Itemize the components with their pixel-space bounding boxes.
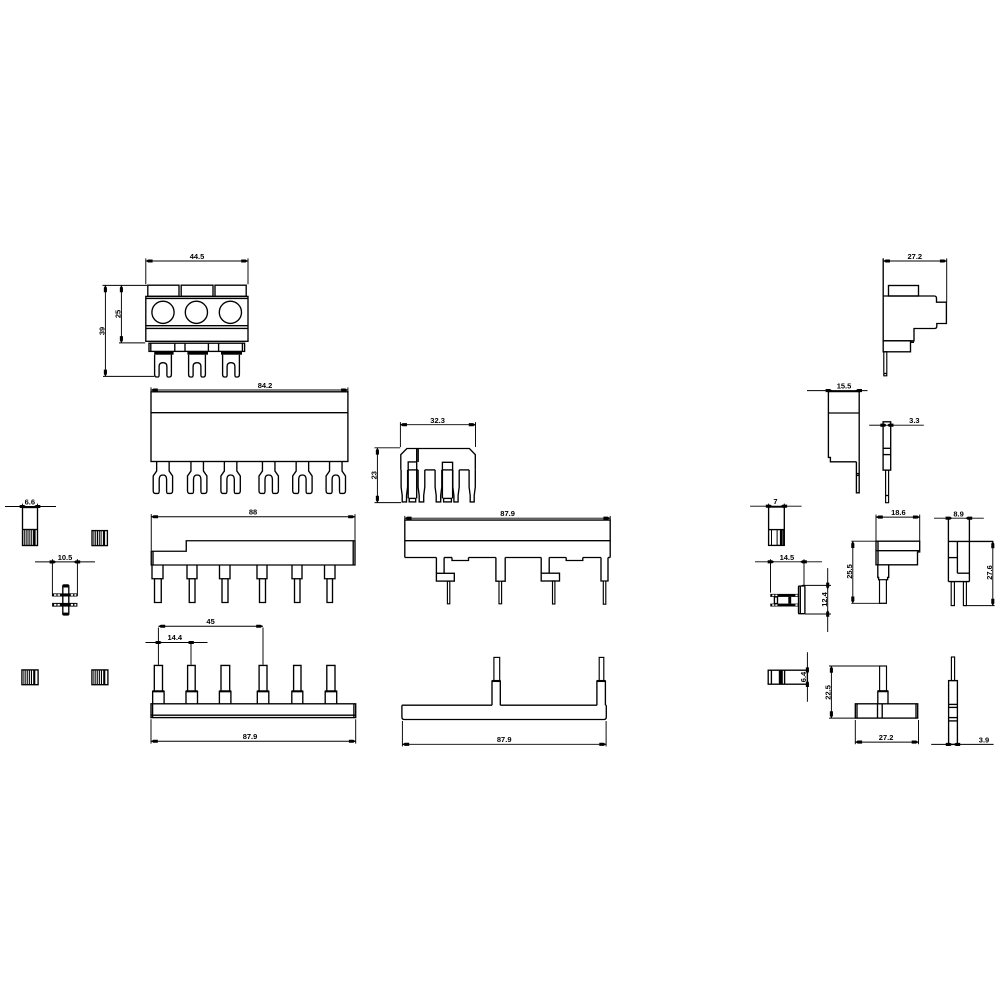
svg-text:27.2: 27.2 (907, 252, 922, 261)
svg-text:44.5: 44.5 (190, 252, 205, 261)
svg-text:25: 25 (113, 310, 122, 318)
svg-text:87.9: 87.9 (500, 509, 515, 518)
svg-text:18.6: 18.6 (891, 508, 906, 517)
svg-text:7: 7 (773, 497, 777, 506)
svg-text:14.5: 14.5 (780, 553, 795, 562)
svg-text:23: 23 (369, 471, 378, 479)
svg-text:88: 88 (249, 508, 257, 517)
svg-text:3.3: 3.3 (909, 416, 919, 425)
svg-text:87.9: 87.9 (243, 732, 258, 741)
svg-text:14.4: 14.4 (167, 633, 182, 642)
svg-text:3.9: 3.9 (979, 735, 989, 744)
svg-text:84.2: 84.2 (258, 381, 273, 390)
svg-text:25.5: 25.5 (845, 564, 854, 579)
svg-text:12.4: 12.4 (820, 591, 829, 606)
svg-text:6.6: 6.6 (25, 498, 35, 507)
svg-text:32.3: 32.3 (430, 416, 445, 425)
svg-text:27.2: 27.2 (879, 733, 894, 742)
svg-text:27.6: 27.6 (985, 565, 994, 580)
svg-text:45: 45 (206, 617, 214, 626)
svg-text:87.9: 87.9 (497, 735, 512, 744)
svg-text:15.5: 15.5 (837, 381, 852, 390)
svg-text:39: 39 (97, 327, 106, 335)
svg-text:22.5: 22.5 (824, 685, 833, 700)
svg-text:10.5: 10.5 (58, 553, 73, 562)
svg-text:6.4: 6.4 (799, 671, 808, 682)
svg-text:8.9: 8.9 (953, 509, 963, 518)
